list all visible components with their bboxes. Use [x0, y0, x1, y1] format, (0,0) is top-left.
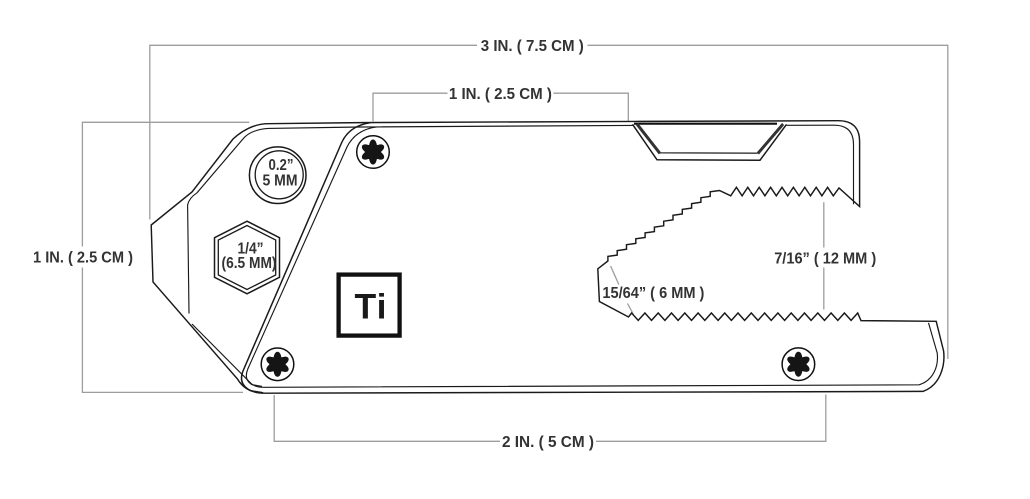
svg-text:7/16” ( 12 MM ): 7/16” ( 12 MM ) [774, 251, 876, 268]
svg-text:1 IN. ( 2.5 CM ): 1 IN. ( 2.5 CM ) [449, 86, 552, 103]
svg-text:15/64” ( 6 MM ): 15/64” ( 6 MM ) [602, 285, 704, 302]
svg-text:0.2”: 0.2” [269, 157, 294, 174]
svg-text:2 IN. ( 5 CM ): 2 IN. ( 5 CM ) [502, 434, 594, 451]
svg-text:1 IN. ( 2.5 CM ): 1 IN. ( 2.5 CM ) [33, 250, 133, 267]
svg-text:3 IN. ( 7.5 CM ): 3 IN. ( 7.5 CM ) [481, 38, 584, 55]
svg-text:(6.5 MM): (6.5 MM) [222, 255, 277, 272]
svg-text:5 MM: 5 MM [263, 173, 298, 190]
svg-text:Ti: Ti [354, 286, 387, 326]
